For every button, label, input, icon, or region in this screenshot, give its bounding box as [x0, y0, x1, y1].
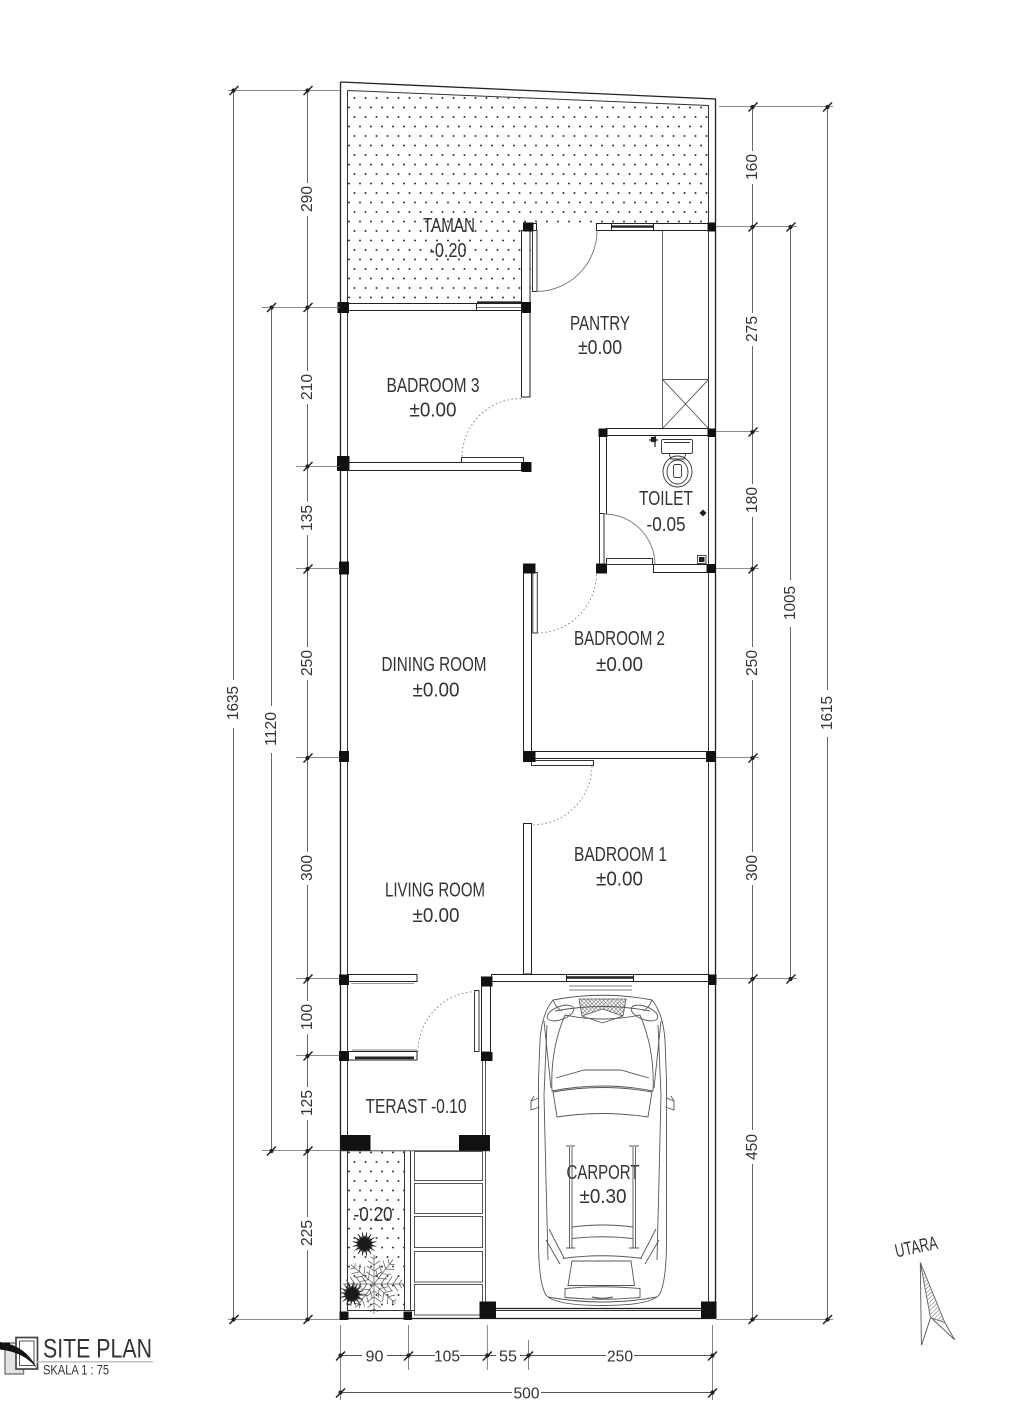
- svg-text:300: 300: [299, 855, 316, 881]
- svg-text:300: 300: [744, 855, 761, 881]
- svg-text:1120: 1120: [263, 712, 280, 746]
- svg-text:1005: 1005: [782, 586, 799, 620]
- svg-text:1615: 1615: [819, 696, 836, 730]
- svg-text:LIVING ROOM: LIVING ROOM: [385, 879, 485, 902]
- svg-text:100: 100: [299, 1004, 316, 1030]
- svg-text:SITE PLAN: SITE PLAN: [43, 1334, 152, 1364]
- svg-text:CARPORT: CARPORT: [567, 1161, 640, 1184]
- svg-text:125: 125: [299, 1090, 316, 1116]
- svg-text:105: 105: [434, 1349, 460, 1366]
- svg-text:BADROOM 1: BADROOM 1: [574, 843, 667, 866]
- svg-text:250: 250: [744, 650, 761, 676]
- svg-text:90: 90: [366, 1349, 384, 1366]
- svg-text:TERAST -0.10: TERAST -0.10: [366, 1095, 467, 1118]
- svg-text:225: 225: [299, 1220, 316, 1246]
- svg-text:180: 180: [744, 487, 761, 513]
- svg-text:210: 210: [299, 374, 316, 400]
- svg-text:275: 275: [744, 316, 761, 342]
- svg-text:-0.05: -0.05: [647, 513, 686, 536]
- svg-text:250: 250: [299, 650, 316, 676]
- svg-text:1635: 1635: [225, 686, 242, 720]
- svg-text:TOILET: TOILET: [639, 487, 693, 510]
- svg-text:BADROOM 2: BADROOM 2: [574, 627, 665, 650]
- svg-text:SKALA 1 : 75: SKALA 1 : 75: [43, 1363, 109, 1378]
- svg-text:250: 250: [607, 1349, 633, 1366]
- svg-text:±0.00: ±0.00: [596, 653, 643, 676]
- svg-text:±0.00: ±0.00: [578, 336, 622, 359]
- svg-text:BADROOM 3: BADROOM 3: [387, 374, 480, 397]
- svg-text:PANTRY: PANTRY: [570, 312, 630, 335]
- svg-text:500: 500: [514, 1386, 540, 1403]
- svg-text:±0.00: ±0.00: [596, 868, 643, 891]
- svg-text:±0.00: ±0.00: [413, 679, 460, 702]
- svg-text:±0.30: ±0.30: [580, 1185, 627, 1208]
- svg-text:135: 135: [299, 505, 316, 531]
- svg-text:±0.00: ±0.00: [410, 399, 457, 422]
- svg-text:-0.20: -0.20: [354, 1203, 393, 1226]
- svg-text:55: 55: [499, 1349, 517, 1366]
- svg-text:450: 450: [744, 1134, 761, 1160]
- svg-text:±0.00: ±0.00: [413, 904, 460, 927]
- svg-text:DINING ROOM: DINING ROOM: [382, 653, 487, 676]
- svg-text:TAMAN: TAMAN: [423, 214, 475, 237]
- svg-text:290: 290: [299, 186, 316, 212]
- svg-text:160: 160: [744, 154, 761, 180]
- svg-text:-0.20: -0.20: [430, 239, 467, 262]
